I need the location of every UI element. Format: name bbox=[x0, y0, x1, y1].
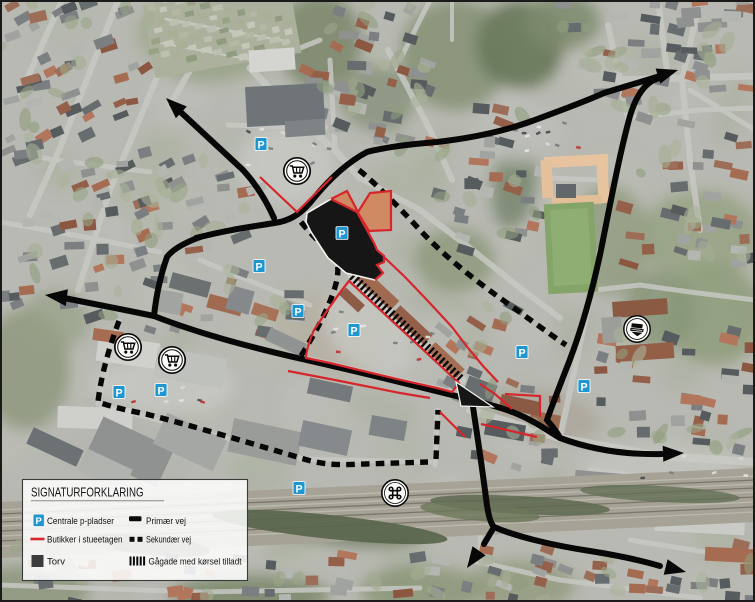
svg-text:Primær vej: Primær vej bbox=[146, 516, 186, 527]
svg-text:P: P bbox=[255, 262, 262, 274]
svg-text:P: P bbox=[338, 229, 345, 241]
svg-text:P: P bbox=[294, 307, 301, 319]
svg-text:P: P bbox=[295, 484, 302, 496]
svg-text:P: P bbox=[518, 348, 525, 360]
svg-text:P: P bbox=[580, 382, 587, 394]
svg-text:Gågade med kørsel tilladt: Gågade med kørsel tilladt bbox=[149, 557, 242, 568]
svg-text:Sekundær vej: Sekundær vej bbox=[146, 535, 191, 546]
svg-text:Butikker i stueetagen: Butikker i stueetagen bbox=[47, 535, 123, 546]
svg-text:P: P bbox=[115, 388, 122, 400]
svg-text:P: P bbox=[157, 386, 164, 398]
svg-text:Centrale p-pladser: Centrale p-pladser bbox=[47, 516, 115, 527]
svg-text:P: P bbox=[350, 326, 357, 338]
svg-text:SIGNATURFORKLARING: SIGNATURFORKLARING bbox=[31, 485, 144, 500]
svg-text:P: P bbox=[36, 516, 43, 527]
svg-text:P: P bbox=[257, 140, 264, 152]
svg-text:Torv: Torv bbox=[47, 557, 65, 568]
